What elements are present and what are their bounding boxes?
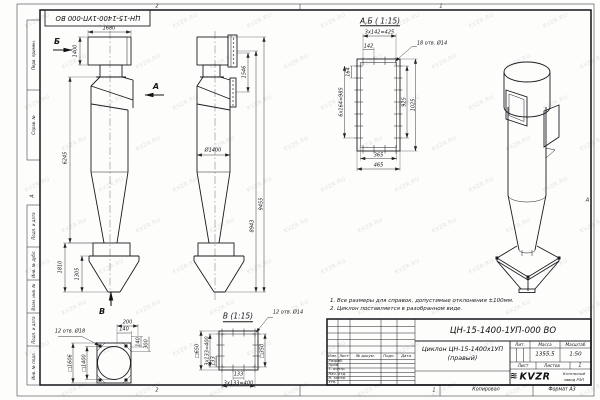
list-header: Лист — [339, 354, 349, 358]
dim-ab-465: 465 — [374, 164, 384, 169]
dim-plan-200: 200 — [123, 320, 133, 325]
dim-plan-1606: □1606 — [68, 354, 73, 371]
dim-ab-365: 365 — [374, 153, 384, 158]
lit-header: Лит. — [515, 343, 525, 347]
view-direction-label-b: Б — [54, 38, 60, 46]
frame-label-vzam-inv: Взам. инв. № — [32, 283, 36, 310]
drawing-linework — [0, 0, 600, 400]
dim-v-133-bottom: 133 — [234, 373, 244, 378]
sheets-header: Листов — [544, 363, 560, 367]
masshtab-header: Масштаб — [566, 343, 586, 347]
dim-front-bunker-1305: 1305 — [76, 268, 81, 281]
zone-marker-bottom-left: 2 — [155, 388, 158, 393]
view-direction-label-a: А — [153, 83, 159, 91]
dim-v-350: □350 — [261, 343, 266, 357]
kopiroval-label: Копировал — [472, 388, 499, 393]
frame-label-podp-data-1: Подп. и дата — [32, 212, 36, 239]
side-view — [194, 31, 266, 302]
dim-v-3x133-bottom: 3x133=400 — [224, 381, 253, 386]
callout-plan-holes: 12 отв. Ø18 — [55, 330, 85, 335]
izm-header: Изм. — [328, 354, 337, 358]
top-designation-stamp: ЦН-15-1400-1УП-000 ВО — [55, 14, 140, 22]
kvzr-logo-text: KVZR — [520, 372, 551, 382]
massa-value: 1355,5 — [535, 352, 554, 358]
kvzr-logo-icon: ≋ — [510, 373, 518, 382]
dim-v-3x133-left: 3x133=400 — [205, 336, 210, 365]
note-line-2: 2. Циклон поставляется в разобранном вид… — [330, 306, 462, 312]
sheets-value: 1 — [578, 363, 581, 368]
scale-value: 1:50 — [569, 352, 581, 358]
dim-plan-140-v: 140 — [136, 337, 141, 347]
dim-plan-300: 300 — [144, 339, 149, 349]
frame-label-inv-dubl: Инв. № дубл. — [32, 250, 36, 277]
zone-marker-top-right: 1 — [439, 5, 442, 10]
dim-front-height-6245: 6245 — [64, 152, 69, 165]
note-line-1: 1. Все размеры для справок, допустимые о… — [330, 298, 514, 304]
drawing-name-line1: Циклон ЦН-15-1400х1УП — [422, 347, 503, 353]
sheet-frame — [17, 4, 594, 396]
doc-header: № докум. — [356, 354, 375, 358]
drawing-sheet: KVZR.RUKVZR.RUKVZR.RUKVZR.RUKVZR.RUKVZR.… — [0, 0, 600, 400]
view-v-title: В (1:15) — [223, 312, 253, 322]
frame-label-inv-podl: Инв. № подл. — [32, 352, 36, 380]
frame-label-podp-data-2: Подп. и дата — [32, 316, 36, 343]
zone-marker-right: А — [586, 199, 589, 204]
drawing-name-line2: (правый) — [448, 356, 478, 362]
zone-marker-top-left: 2 — [155, 5, 158, 10]
engineering-drawing-page: { "sheet": { "top_stamp": "ЦН-15-1400-1У… — [0, 0, 600, 400]
dim-front-inlet-height-1400: 1400 — [74, 45, 79, 58]
dim-side-9455: 9455 — [259, 198, 264, 211]
dim-front-bunker-1810: 1810 — [59, 261, 64, 274]
view-direction-label-v: В — [99, 308, 105, 316]
zone-marker-left: А — [31, 194, 36, 197]
frame-label-perv-primen: Перв. примен. — [32, 40, 36, 70]
data-header: Дата — [401, 354, 411, 358]
dim-side-1546: 1546 — [242, 66, 247, 79]
callout-v-holes: 12 отв. Ø14 — [273, 311, 303, 316]
dim-ab-6x164: 6x164=985 — [340, 87, 345, 116]
dim-plan-140-h: 140 — [119, 328, 129, 333]
company-line2: завод РЭП — [564, 378, 585, 382]
zone-marker-bottom-mid: 1 — [432, 388, 435, 393]
dim-plan-1400: □1400 — [82, 354, 87, 371]
sheet-header: Лист — [518, 363, 529, 367]
section-ab-title: А,Б ( 1:15) — [360, 17, 400, 27]
front-view — [53, 30, 164, 306]
dim-ab-1025: 1025 — [411, 99, 416, 112]
dim-ab-3x142: 3x142=425 — [365, 30, 394, 35]
dim-ab-164: 164 — [347, 67, 352, 77]
dim-v-650: □650 — [196, 343, 201, 357]
dim-ab-925: 925 — [402, 97, 407, 107]
dim-front-width-1680: 1680 — [103, 26, 116, 31]
isometric-view — [496, 62, 561, 293]
frame-label-sprav-no: Справ. № — [32, 115, 36, 134]
title-designation: ЦН-15-1400-1УП-000 ВО — [450, 326, 556, 335]
format-label: Формат А3 — [548, 388, 575, 393]
massa-header: Масса — [538, 343, 551, 347]
row-utv: Утв. — [329, 381, 337, 385]
podp-header: Подп. — [383, 354, 395, 358]
dim-side-8943: 8943 — [250, 220, 255, 233]
callout-ab-holes: 18 отв. Ø14 — [417, 42, 447, 47]
dim-side-diameter-1400: Ø1400 — [205, 148, 222, 153]
dim-ab-142: 142 — [364, 45, 374, 50]
dim-v-133-left: 133 — [211, 356, 216, 366]
company-line1: Котельный — [563, 372, 585, 376]
